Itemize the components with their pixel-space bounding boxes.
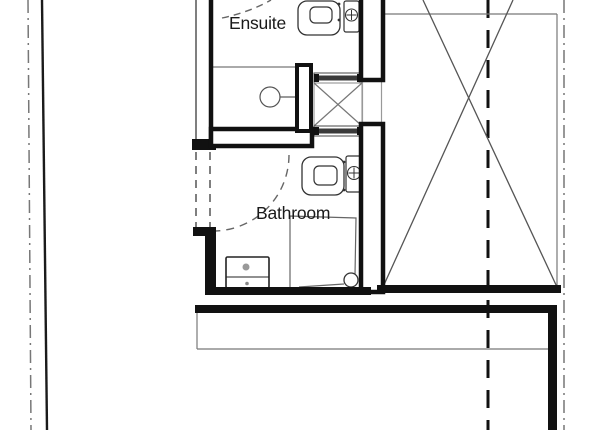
ensuite-wash-basin — [344, 1, 359, 32]
bathroom-room-label: Bathroom — [256, 203, 330, 223]
wall-vent-lower — [314, 126, 362, 136]
middle-wall-upper-segment — [361, 0, 383, 80]
floor-plan-drawing: Ensuite Bathroom — [0, 0, 608, 430]
bathroom-bottom-wall — [205, 287, 371, 295]
wall-vent-upper — [314, 73, 362, 83]
bathroom-vanity-unit — [226, 257, 269, 288]
bathroom-toilet — [302, 157, 345, 195]
ensuite-room-label: Ensuite — [229, 13, 286, 33]
ensuite-toilet — [298, 1, 340, 35]
void-bottom-wall — [377, 285, 561, 293]
ensuite-shower-stub-wall — [297, 65, 311, 131]
floor-plan-canvas: Ensuite Bathroom — [0, 0, 608, 430]
middle-wall-lower-segment — [361, 124, 383, 292]
